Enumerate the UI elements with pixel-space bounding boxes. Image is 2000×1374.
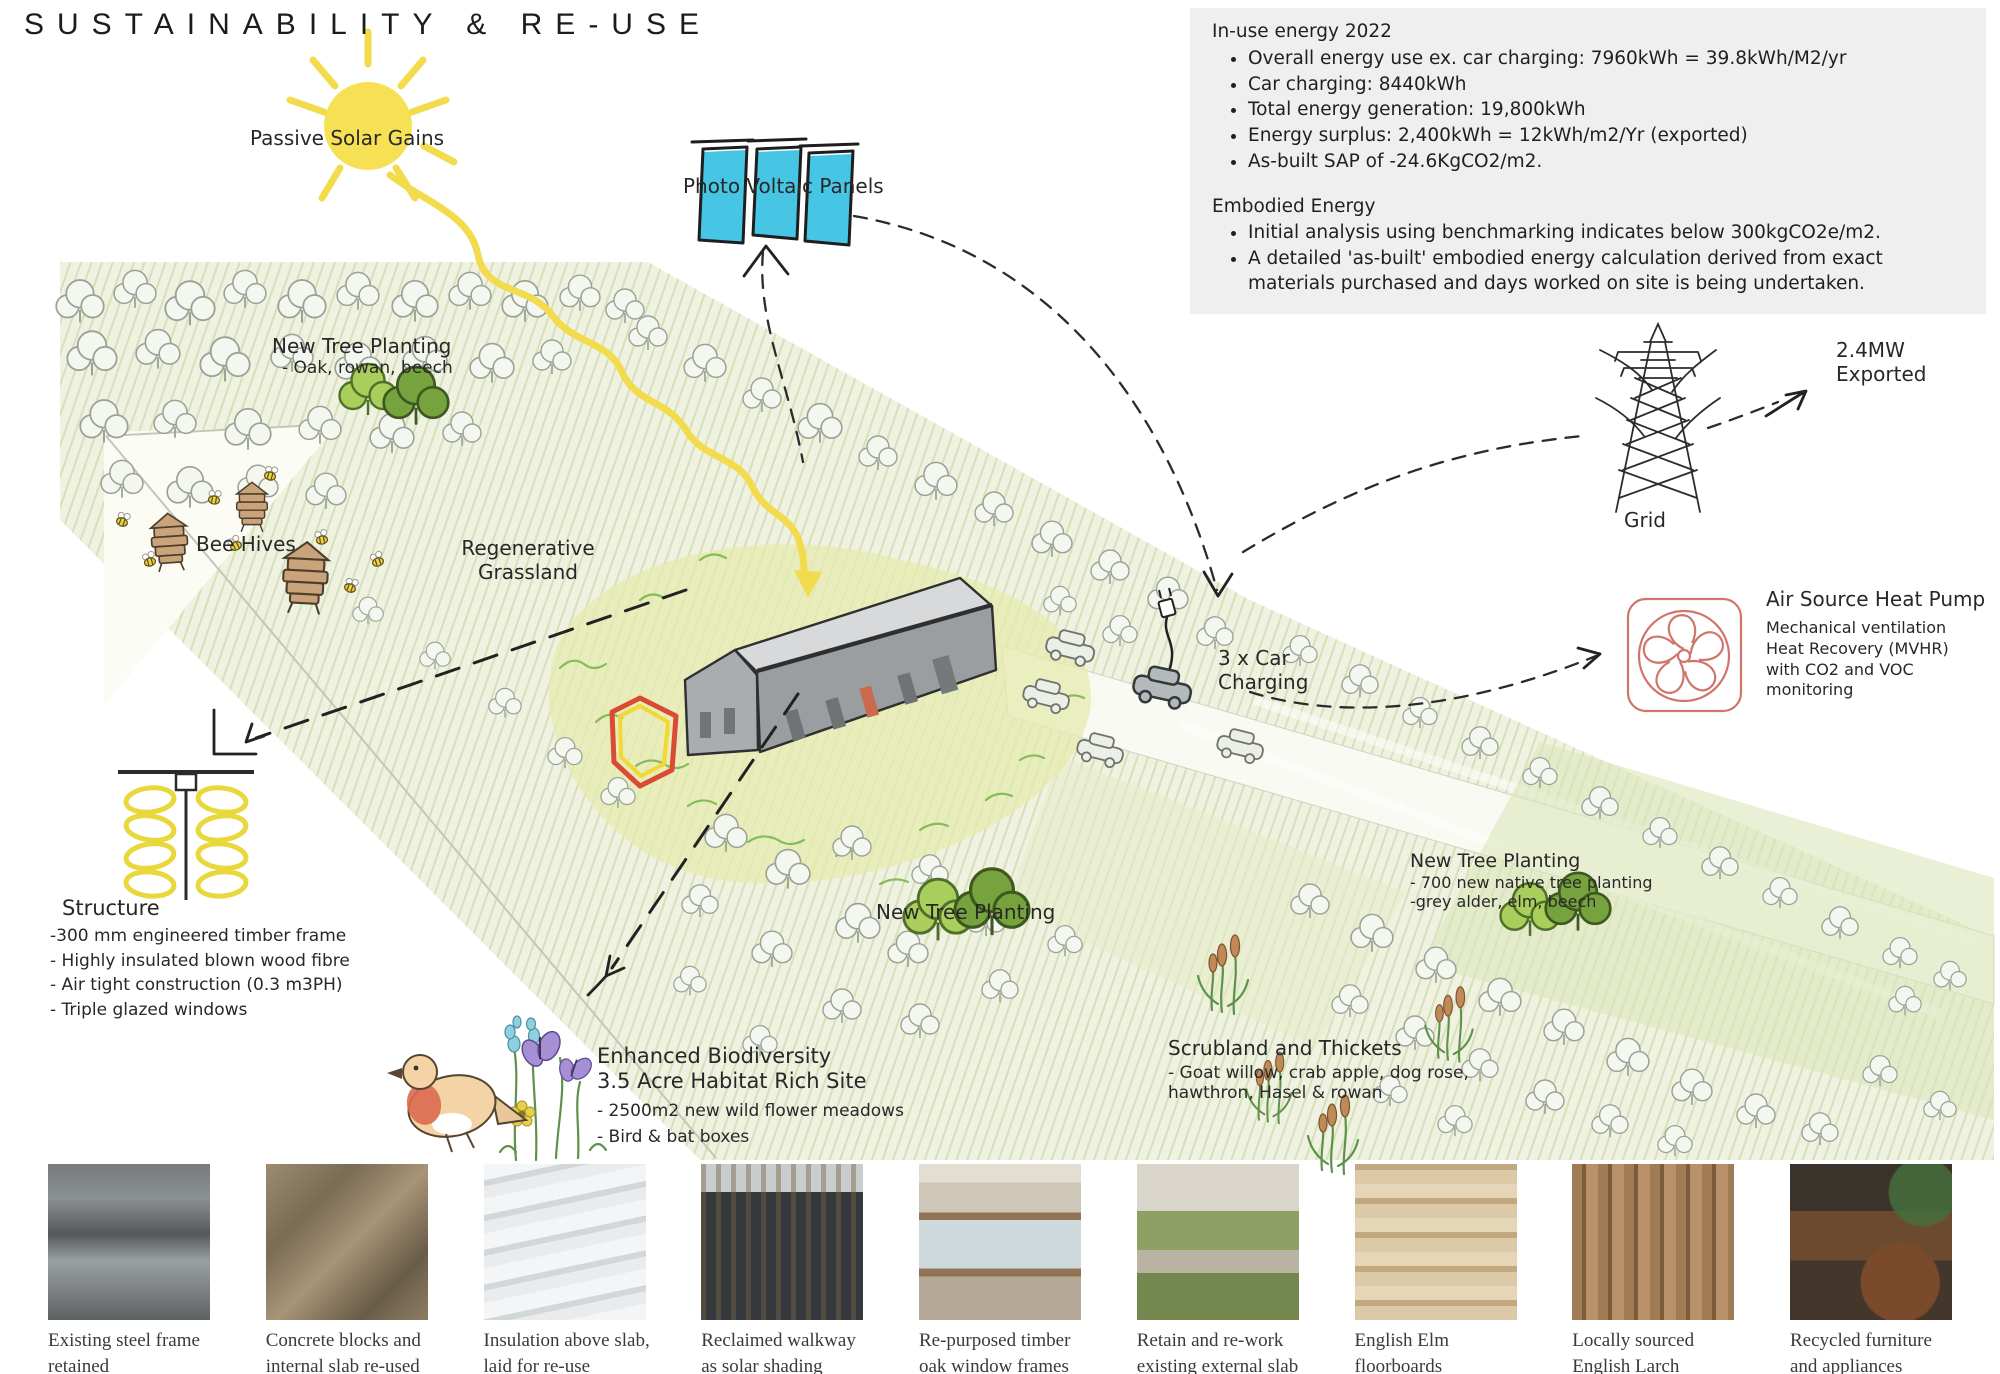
- photo-card: Reclaimed walkway as solar shading: [701, 1164, 863, 1374]
- heat-pump-label: Air Source Heat Pump Mechanical ventilat…: [1766, 588, 1988, 701]
- heat-pump-icon: [1628, 599, 1741, 711]
- charging-plug-icon: [1158, 598, 1176, 617]
- tree-planting-nw-label: New Tree Planting - Oak, rowan, beech: [272, 334, 453, 378]
- bee-hives-label: Bee Hives: [196, 532, 296, 556]
- page-title: SUSTAINABILITY & RE-USE: [24, 8, 712, 42]
- photo-reclaimed-walkway: [701, 1164, 863, 1320]
- structure-title: Structure: [62, 896, 350, 921]
- photo-timber-window-frames: [919, 1164, 1081, 1320]
- photo-card: Recycled furniture and appliances throug…: [1790, 1164, 1952, 1374]
- label-line: New Tree Planting: [272, 334, 453, 358]
- embodied-energy-heading: Embodied Energy: [1212, 195, 1964, 220]
- list-item: Total energy generation: 19,800kWh: [1248, 98, 1964, 123]
- tree-planting-mid-label: New Tree Planting: [876, 900, 1055, 924]
- photo-elm-floorboards: [1355, 1164, 1517, 1320]
- photo-caption: Recycled furniture and appliances throug…: [1790, 1328, 1962, 1374]
- label-line: Charging: [1218, 670, 1308, 694]
- label-line: -grey alder, elm, beech: [1410, 892, 1653, 911]
- label-line: - Highly insulated blown wood fibre: [50, 949, 350, 974]
- label-line: 3.5 Acre Habitat Rich Site: [597, 1069, 904, 1094]
- list-item: Car charging: 8440kWh: [1248, 73, 1964, 98]
- label-line: - Goat willow, crab apple, dog rose,: [1168, 1063, 1469, 1083]
- tree-planting-east-label: New Tree Planting - 700 new native tree …: [1410, 850, 1653, 911]
- label-line: 3 x Car: [1218, 646, 1308, 670]
- photo-insulation-boards: [484, 1164, 646, 1320]
- robin-icon: [387, 1055, 526, 1152]
- label-line: Exported: [1836, 362, 1926, 386]
- in-use-energy-heading: In-use energy 2022: [1212, 20, 1964, 45]
- label-line: Regenerative: [448, 536, 608, 560]
- grassland-label: Regenerative Grassland: [448, 536, 608, 584]
- photo-external-slab: [1137, 1164, 1299, 1320]
- biodiversity-illustration: [387, 1016, 606, 1160]
- embodied-energy-list: Initial analysis using benchmarking indi…: [1212, 221, 1964, 296]
- photo-caption: Concrete blocks and internal slab re-use…: [266, 1328, 438, 1374]
- sun-icon: [290, 32, 454, 198]
- photo-larch-cladding: [1572, 1164, 1734, 1320]
- scrubland-label: Scrubland and Thickets - Goat willow, cr…: [1168, 1036, 1469, 1104]
- list-item: Energy surplus: 2,400kWh = 12kWh/m2/Yr (…: [1248, 124, 1964, 149]
- exported-label: 2.4MW Exported: [1836, 338, 1926, 386]
- photo-caption: Retain and re-work existing external sla…: [1137, 1328, 1309, 1374]
- photo-caption: Existing steel frame retained: [48, 1328, 220, 1374]
- photo-card: Concrete blocks and internal slab re-use…: [266, 1164, 428, 1374]
- pv-panels-icon: [692, 139, 858, 276]
- photo-card: Insulation above slab, laid for re-use: [484, 1164, 646, 1374]
- photo-caption: Locally sourced English Larch cladding: [1572, 1328, 1744, 1374]
- label-line: 2.4MW: [1836, 338, 1926, 362]
- photo-caption: Reclaimed walkway as solar shading: [701, 1328, 873, 1374]
- photo-card: Locally sourced English Larch cladding: [1572, 1164, 1734, 1374]
- list-item: Initial analysis using benchmarking indi…: [1248, 221, 1964, 246]
- biodiversity-notes: Enhanced Biodiversity 3.5 Acre Habitat R…: [597, 1044, 904, 1150]
- label-line: - Oak, rowan, beech: [282, 358, 453, 378]
- structure-notes: Structure -300 mm engineered timber fram…: [50, 896, 350, 1023]
- label-line: - Bird & bat boxes: [597, 1125, 904, 1151]
- label-line: hawthron, Hasel & rowan: [1168, 1083, 1469, 1103]
- photo-recycled-furniture: [1790, 1164, 1952, 1320]
- label-line: Grassland: [448, 560, 608, 584]
- photo-caption: Re-purposed timber oak window frames: [919, 1328, 1091, 1374]
- label-line: Enhanced Biodiversity: [597, 1044, 904, 1069]
- photo-card: Retain and re-work existing external sla…: [1137, 1164, 1299, 1374]
- label-line: -300 mm engineered timber frame: [50, 924, 350, 949]
- photo-caption: English Elm floorboards: [1355, 1328, 1527, 1374]
- photo-caption: Insulation above slab, laid for re-use: [484, 1328, 656, 1374]
- grid-pylon-icon: [1596, 324, 1720, 512]
- passive-solar-label: Passive Solar Gains: [250, 126, 444, 150]
- energy-summary-panel: In-use energy 2022 Overall energy use ex…: [1190, 8, 1986, 314]
- photo-existing-steel-frame: [48, 1164, 210, 1320]
- label-line: Scrubland and Thickets: [1168, 1036, 1469, 1060]
- photo-card: Re-purposed timber oak window frames: [919, 1164, 1081, 1374]
- list-item: As-built SAP of -24.6KgCO2/m2.: [1248, 150, 1964, 175]
- heat-pump-desc: Mechanical ventilation Heat Recovery (MV…: [1766, 618, 1982, 701]
- label-line: - 2500m2 new wild flower meadows: [597, 1099, 904, 1125]
- label-line: - 700 new native tree planting: [1410, 873, 1653, 892]
- car-charging-label: 3 x Car Charging: [1218, 646, 1308, 694]
- photo-concrete-blocks: [266, 1164, 428, 1320]
- photo-card: Existing steel frame retained: [48, 1164, 210, 1374]
- in-use-energy-list: Overall energy use ex. car charging: 796…: [1212, 47, 1964, 175]
- label-line: New Tree Planting: [1410, 850, 1653, 873]
- page: SUSTAINABILITY & RE-USE In-use energy 20…: [0, 0, 2000, 1374]
- heat-pump-title: Air Source Heat Pump: [1766, 588, 1988, 611]
- list-item: A detailed 'as-built' embodied energy ca…: [1248, 247, 1964, 297]
- pv-panels-label: Photo Voltaic Panels: [683, 174, 884, 198]
- photo-card: English Elm floorboards: [1355, 1164, 1517, 1374]
- insulated-wall-detail-icon: [118, 772, 254, 900]
- photo-strip: Existing steel frame retained Concrete b…: [0, 1164, 2000, 1374]
- label-line: - Triple glazed windows: [50, 998, 350, 1023]
- grid-label: Grid: [1624, 508, 1666, 532]
- label-line: - Air tight construction (0.3 m3PH): [50, 973, 350, 998]
- list-item: Overall energy use ex. car charging: 796…: [1248, 47, 1964, 72]
